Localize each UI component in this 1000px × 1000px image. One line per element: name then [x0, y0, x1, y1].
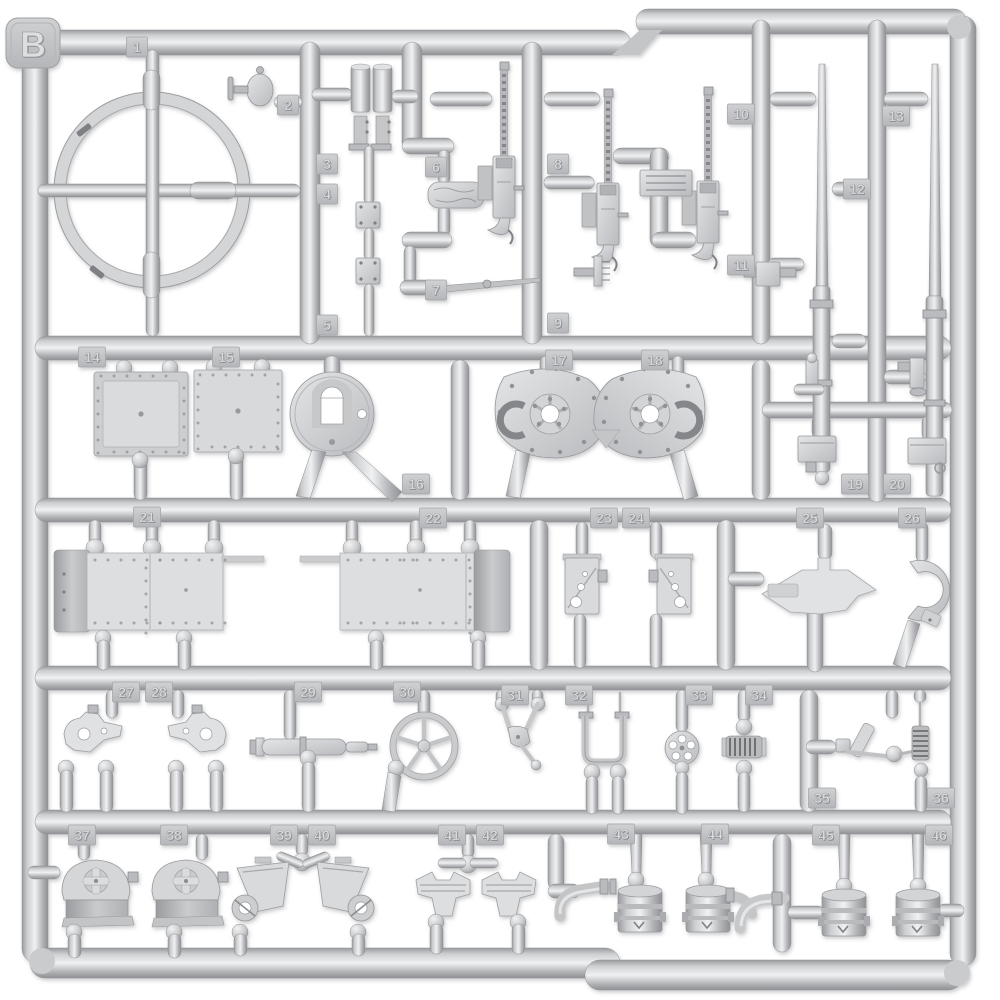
part-tab-42: 4242 — [477, 825, 504, 845]
part-number: 20 — [889, 476, 905, 492]
part-number: 46 — [931, 827, 947, 843]
part-tab-32: 3232 — [566, 685, 593, 705]
part-number: 39 — [276, 827, 292, 843]
part-tab-37: 3737 — [69, 825, 96, 845]
sprue-letter: B — [20, 24, 46, 65]
part-tab-43: 4343 — [608, 824, 635, 844]
part-tab-9: 99 — [548, 313, 569, 333]
part-number: 3 — [323, 156, 331, 172]
part-tab-8: 88 — [548, 154, 569, 174]
part-number: 15 — [218, 349, 234, 365]
part-tab-13: 1313 — [883, 106, 910, 126]
part-tab-41: 4141 — [439, 825, 466, 845]
part-number: 17 — [551, 352, 567, 368]
part-tab-30: 3030 — [394, 682, 421, 702]
part-6-wood-log — [428, 182, 484, 208]
part-tab-28: 2828 — [146, 682, 173, 702]
part-tab-7: 77 — [426, 280, 447, 300]
part-number: 27 — [118, 684, 134, 700]
part-number: 25 — [802, 510, 818, 526]
part-tab-31: 3131 — [502, 685, 529, 705]
part-number: 38 — [166, 827, 182, 843]
part-number: 2 — [284, 97, 292, 113]
part-tab-25: 2525 — [797, 508, 824, 528]
part-number: 11 — [734, 257, 749, 273]
part-tab-29: 2929 — [295, 682, 322, 702]
part-number: 43 — [613, 826, 629, 842]
part-tab-20: 2020 — [884, 474, 911, 494]
part-number: 12 — [849, 181, 865, 197]
part-number: 24 — [628, 510, 644, 526]
part-number: 41 — [444, 827, 460, 843]
part-number: 23 — [596, 510, 612, 526]
part-tab-10: 1010 — [728, 104, 755, 124]
part-number: 42 — [482, 827, 498, 843]
part-tab-27: 2727 — [113, 682, 140, 702]
part-tab-36: 3636 — [928, 788, 955, 808]
part-tab-11: 1111 — [728, 255, 755, 275]
part-number: 34 — [751, 687, 767, 703]
part-tab-6: 66 — [426, 157, 447, 177]
part-tab-4: 44 — [317, 184, 338, 204]
part-number: 21 — [139, 509, 155, 525]
part-tab-21: 2121 — [134, 507, 161, 527]
part-tab-33: 3333 — [686, 685, 713, 705]
part-tab-3: 33 — [317, 154, 338, 174]
part-number: 32 — [571, 687, 587, 703]
part-number: 10 — [733, 106, 749, 122]
part-tab-5: 55 — [317, 315, 338, 335]
part-number: 26 — [904, 510, 920, 526]
part-number: 6 — [432, 159, 440, 175]
photo-canvas: 1122334455667788991010111112121313141415… — [0, 0, 1000, 1000]
part-number: 33 — [691, 687, 707, 703]
part-tab-40: 4040 — [309, 825, 336, 845]
part-number: 18 — [647, 352, 663, 368]
part-number: 35 — [814, 790, 830, 806]
part-number: 13 — [888, 108, 904, 124]
part-tab-44: 4444 — [702, 824, 729, 844]
part-number: 44 — [707, 826, 723, 842]
part-tab-26: 2626 — [899, 508, 926, 528]
part-number: 7 — [432, 282, 440, 298]
part-tab-2: 22 — [278, 95, 299, 115]
part-tab-39: 3939 — [271, 825, 298, 845]
part-number: 36 — [933, 790, 949, 806]
part-number: 29 — [300, 684, 316, 700]
part-tab-46: 4646 — [926, 825, 953, 845]
part-number: 4 — [323, 186, 331, 202]
part-number: 16 — [408, 476, 424, 492]
part-tab-18: 1818 — [642, 350, 669, 370]
part-tab-12: 1212 — [844, 179, 871, 199]
part-number: 40 — [314, 827, 330, 843]
part-tab-24: 2424 — [623, 508, 650, 528]
part-number: 28 — [151, 684, 167, 700]
part-number: 9 — [554, 315, 562, 331]
part-number: 19 — [847, 476, 863, 492]
part-tab-17: 1717 — [546, 350, 573, 370]
part-tab-38: 3838 — [161, 825, 188, 845]
part-number: 31 — [507, 687, 523, 703]
part-number: 30 — [399, 684, 415, 700]
part-tab-14: 1414 — [79, 347, 106, 367]
part-number: 45 — [818, 827, 834, 843]
part-tab-15: 1515 — [213, 347, 240, 367]
part-number: 14 — [84, 349, 100, 365]
part-tab-34: 3434 — [746, 685, 773, 705]
part-number: 22 — [425, 510, 441, 526]
part-number: 1 — [133, 39, 141, 55]
part-tab-16: 1616 — [403, 474, 430, 494]
part-tab-19: 1919 — [842, 474, 869, 494]
part-tab-45: 4545 — [813, 825, 840, 845]
part-number: 8 — [554, 156, 562, 172]
part-tab-23: 2323 — [591, 508, 618, 528]
part-number: 5 — [323, 317, 331, 333]
part-tab-22: 2222 — [420, 508, 447, 528]
sprue-photo: 1122334455667788991010111112121313141415… — [0, 0, 1000, 1000]
part-tab-35: 3535 — [809, 788, 836, 808]
part-tab-1: 11 — [127, 37, 148, 57]
part-number: 37 — [74, 827, 90, 843]
sprue-letter-tab: B B — [6, 18, 60, 68]
